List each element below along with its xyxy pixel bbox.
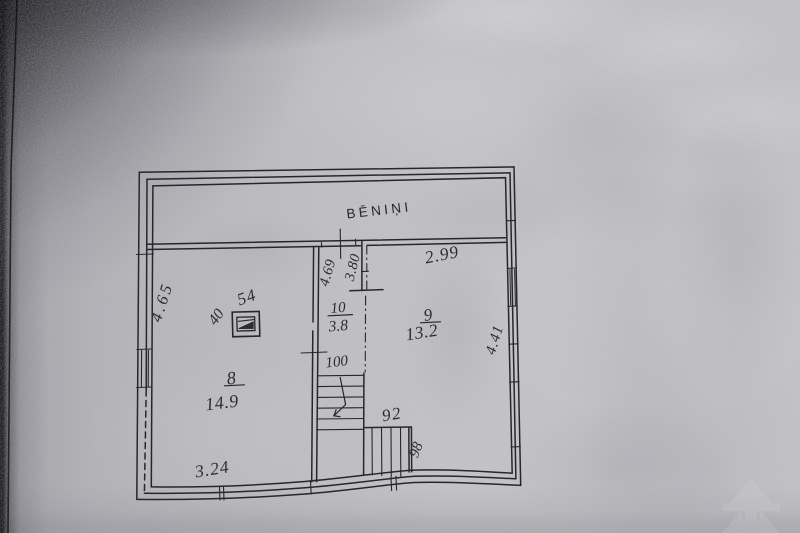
svg-text:3.8: 3.8 — [327, 317, 349, 336]
svg-text:92: 92 — [380, 403, 403, 425]
svg-text:100: 100 — [325, 353, 350, 371]
svg-text:10: 10 — [330, 300, 347, 317]
svg-text:14.9: 14.9 — [204, 391, 240, 415]
